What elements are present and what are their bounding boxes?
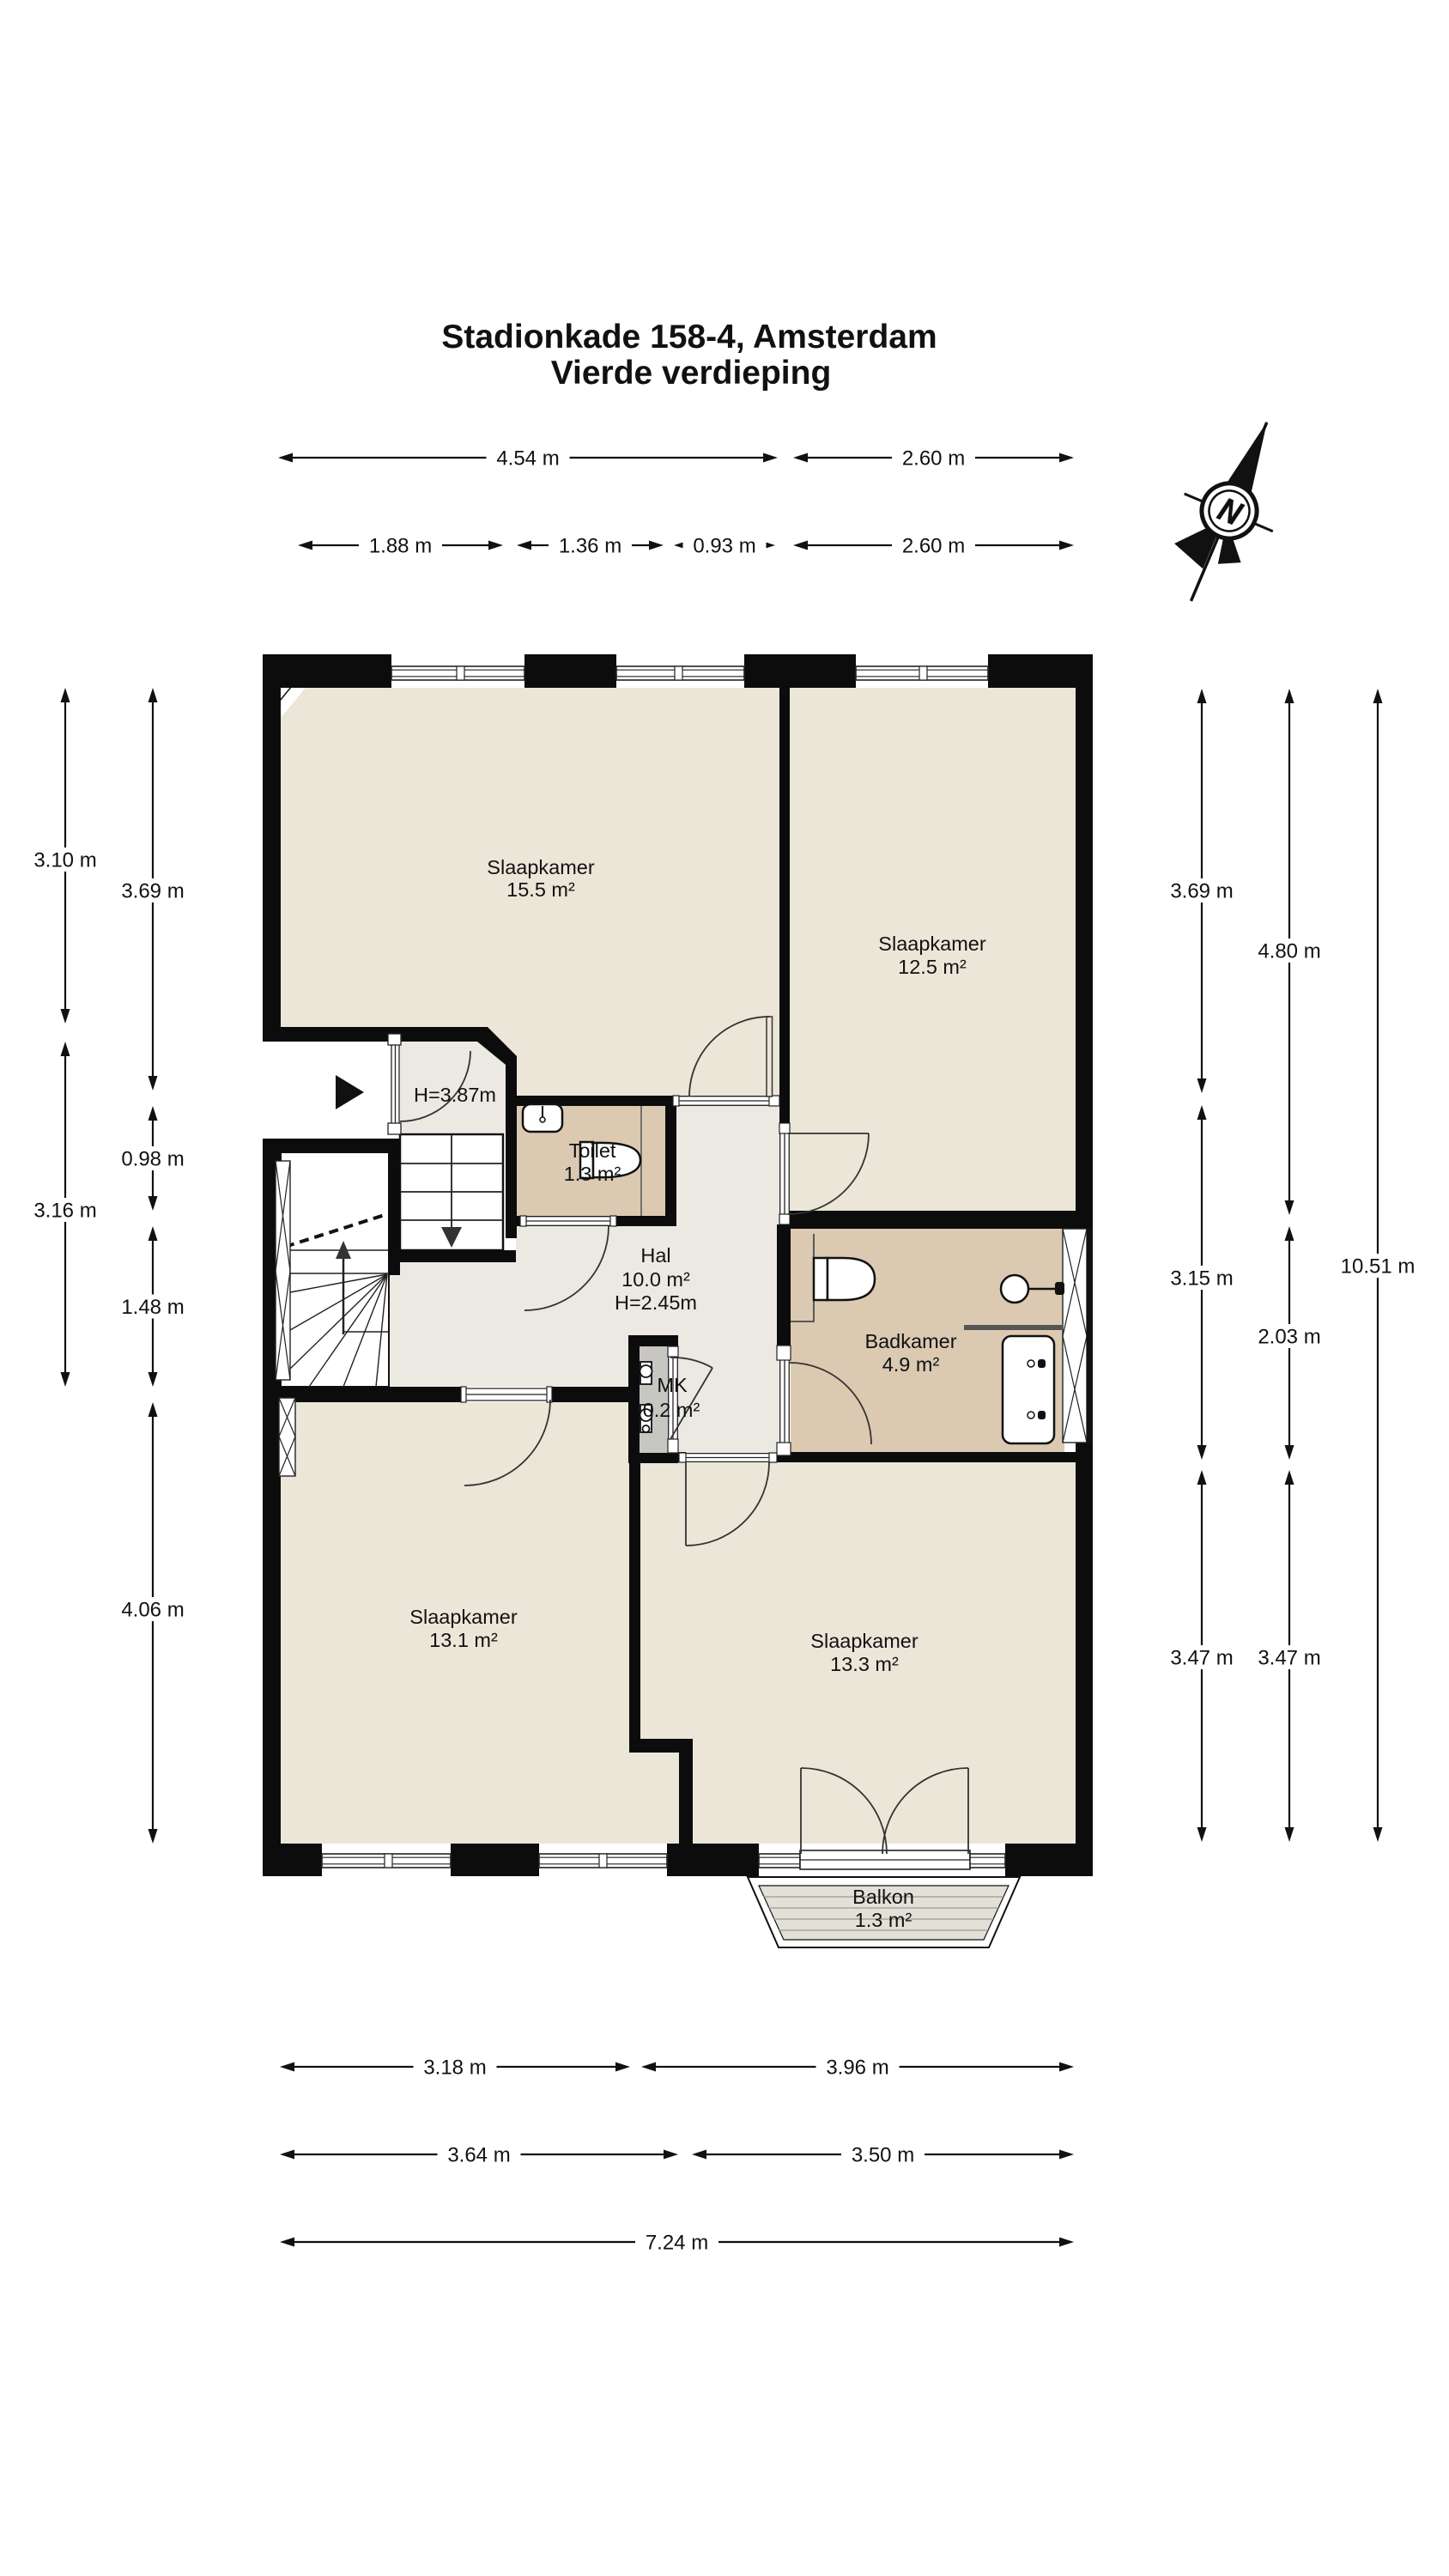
svg-text:3.69 m: 3.69 m <box>1170 880 1233 903</box>
svg-text:4.54 m: 4.54 m <box>496 447 559 471</box>
svg-text:3.15 m: 3.15 m <box>1170 1267 1233 1291</box>
svg-text:2.60 m: 2.60 m <box>902 447 965 471</box>
svg-text:3.96 m: 3.96 m <box>826 2057 888 2080</box>
svg-text:Toilet: Toilet <box>569 1139 616 1162</box>
svg-text:1.36 m: 1.36 m <box>559 535 621 558</box>
svg-text:Slaapkamer: Slaapkamer <box>409 1606 518 1628</box>
svg-text:3.64 m: 3.64 m <box>447 2144 510 2167</box>
svg-text:0.2 m²: 0.2 m² <box>643 1399 700 1421</box>
svg-text:MK: MK <box>657 1374 688 1396</box>
svg-text:Balkon: Balkon <box>852 1886 914 1908</box>
svg-text:15.5 m²: 15.5 m² <box>506 878 575 901</box>
svg-text:Badkamer: Badkamer <box>864 1330 956 1352</box>
svg-text:7.24 m: 7.24 m <box>646 2232 708 2255</box>
svg-text:3.16 m: 3.16 m <box>33 1200 96 1223</box>
svg-text:3.47 m: 3.47 m <box>1258 1647 1320 1670</box>
svg-text:3.47 m: 3.47 m <box>1170 1647 1233 1670</box>
svg-text:3.69 m: 3.69 m <box>121 880 184 903</box>
svg-text:13.1 m²: 13.1 m² <box>429 1629 498 1651</box>
svg-text:0.98 m: 0.98 m <box>121 1148 184 1171</box>
svg-text:H=3.87m: H=3.87m <box>414 1084 496 1106</box>
svg-text:2.03 m: 2.03 m <box>1258 1326 1320 1349</box>
svg-text:4.06 m: 4.06 m <box>121 1599 184 1622</box>
svg-text:4.80 m: 4.80 m <box>1258 940 1320 963</box>
svg-text:Slaapkamer: Slaapkamer <box>878 933 986 955</box>
svg-text:Slaapkamer: Slaapkamer <box>487 856 595 878</box>
svg-text:12.5 m²: 12.5 m² <box>898 956 967 978</box>
svg-text:1.3 m²: 1.3 m² <box>855 1909 912 1931</box>
svg-text:Stadionkade 158-4, Amsterdam: Stadionkade 158-4, Amsterdam <box>441 319 937 355</box>
svg-text:3.50 m: 3.50 m <box>852 2144 914 2167</box>
svg-text:10.51 m: 10.51 m <box>1341 1255 1416 1279</box>
svg-text:Vierde verdieping: Vierde verdieping <box>551 355 832 392</box>
svg-text:1.3 m²: 1.3 m² <box>564 1163 621 1185</box>
svg-text:2.60 m: 2.60 m <box>902 535 965 558</box>
svg-text:10.0 m²: 10.0 m² <box>621 1268 690 1291</box>
svg-text:3.10 m: 3.10 m <box>33 849 96 872</box>
svg-text:13.3 m²: 13.3 m² <box>830 1653 899 1675</box>
svg-text:H=2.45m: H=2.45m <box>615 1291 697 1314</box>
svg-text:1.88 m: 1.88 m <box>369 535 432 558</box>
svg-text:Hal: Hal <box>640 1244 670 1267</box>
svg-text:Slaapkamer: Slaapkamer <box>810 1630 919 1652</box>
svg-text:4.9 m²: 4.9 m² <box>882 1353 940 1376</box>
svg-text:3.18 m: 3.18 m <box>423 2057 486 2080</box>
svg-text:0.93 m: 0.93 m <box>693 535 755 558</box>
svg-text:1.48 m: 1.48 m <box>121 1296 184 1319</box>
